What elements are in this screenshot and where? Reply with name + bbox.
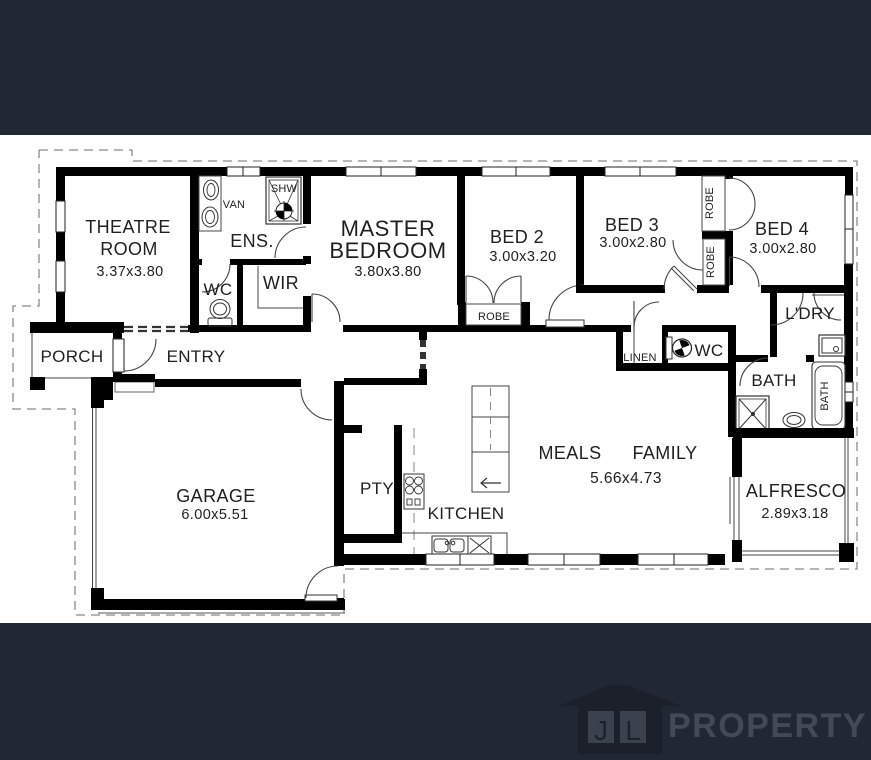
svg-text:3.80x3.80: 3.80x3.80 xyxy=(354,264,421,280)
svg-text:WC: WC xyxy=(695,341,724,360)
svg-text:2.89x3.18: 2.89x3.18 xyxy=(761,506,828,522)
svg-text:KITCHEN: KITCHEN xyxy=(428,504,505,523)
svg-text:FAMILY: FAMILY xyxy=(632,443,697,463)
svg-text:MEALS: MEALS xyxy=(538,443,601,463)
svg-text:3.00x3.20: 3.00x3.20 xyxy=(489,249,556,265)
svg-text:VAN: VAN xyxy=(223,199,245,211)
svg-text:3.37x3.80: 3.37x3.80 xyxy=(96,264,163,280)
svg-text:PROPERTY: PROPERTY xyxy=(668,707,867,745)
svg-text:5.66x4.73: 5.66x4.73 xyxy=(590,470,662,487)
svg-text:SHW: SHW xyxy=(271,183,298,195)
svg-text:ENS.: ENS. xyxy=(230,231,274,251)
svg-text:ROBE: ROBE xyxy=(705,246,717,278)
svg-text:WIR: WIR xyxy=(263,273,299,293)
svg-text:BED 2: BED 2 xyxy=(490,227,544,247)
svg-text:LINEN: LINEN xyxy=(623,352,656,364)
svg-text:BATH: BATH xyxy=(819,381,831,410)
svg-text:THEATRE: THEATRE xyxy=(85,217,170,237)
svg-text:ROOM: ROOM xyxy=(100,239,158,259)
svg-text:ALFRESCO: ALFRESCO xyxy=(746,481,846,501)
svg-text:ENTRY: ENTRY xyxy=(167,347,226,366)
svg-text:BED 3: BED 3 xyxy=(605,215,659,235)
svg-text:BEDROOM: BEDROOM xyxy=(329,238,446,263)
svg-text:L: L xyxy=(625,715,641,746)
svg-text:ROBE: ROBE xyxy=(704,187,716,219)
svg-text:3.00x2.80: 3.00x2.80 xyxy=(749,241,816,257)
svg-text:J: J xyxy=(594,715,608,746)
svg-text:PORCH: PORCH xyxy=(41,347,104,366)
svg-text:BATH: BATH xyxy=(751,371,796,390)
svg-text:3.00x2.80: 3.00x2.80 xyxy=(599,235,666,251)
svg-text:BED 4: BED 4 xyxy=(755,219,809,239)
svg-text:6.00x5.51: 6.00x5.51 xyxy=(181,507,248,523)
svg-text:L'DRY: L'DRY xyxy=(785,304,835,323)
svg-text:ROBE: ROBE xyxy=(478,311,510,323)
svg-text:GARAGE: GARAGE xyxy=(176,486,255,506)
svg-text:PTY: PTY xyxy=(360,479,394,498)
svg-text:WC: WC xyxy=(204,280,233,299)
